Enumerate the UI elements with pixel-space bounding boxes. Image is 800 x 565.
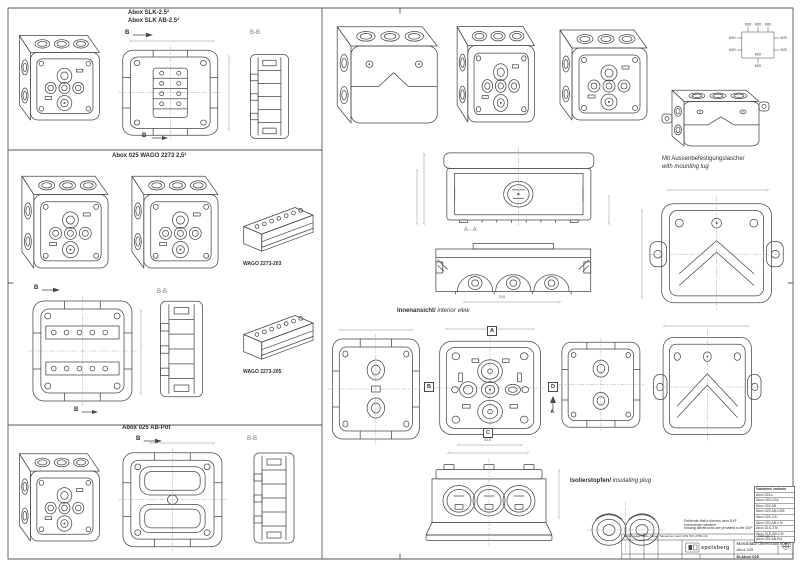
knockout-schematic: M20 M20 M20 M20 M20 M20 M20 M20 M20 [729,23,787,69]
wago-isometric-view-2 [132,176,218,268]
main-section-aa-view [436,244,591,295]
slk-section-marker-b-bottom: B [142,133,146,140]
abpot-front-view [118,448,227,551]
knockout-label: M20 [781,48,788,52]
knockout-label: M20 [781,36,788,40]
insulating-plug-label-de: Isolierstopfen/ [570,478,611,484]
lid-with-lugs-view [652,330,763,442]
insulating-plug-label-en: insulating plug [611,478,651,484]
main-isometric-open-view-2 [560,30,647,120]
scale-label: Maßstab 1:1 [758,535,775,538]
main-isometric-closed-view [337,27,437,123]
interior-marker-b: B [424,382,434,392]
wago-connector-203-label: WAGO 2273-203 [243,262,281,268]
main-isometric-open-view-1 [457,27,534,122]
interior-view-label-en: interior view [436,308,470,314]
wago-title: Abox 025 WAGO 2273 2,5² [112,153,186,160]
mounting-lug-front-view [648,196,785,310]
abpot-section-bb-view [254,453,294,543]
slk-title-line1: Abox SLK-2.5² [128,10,169,17]
abpot-section-marker-b: B [136,436,140,443]
section-aa-label: A - A [464,227,477,234]
abpot-title: Abox 025 AB-Pot [122,425,170,432]
slk-front-view [118,46,223,140]
wago-isometric-view-1 [22,176,108,268]
dimension-sheet: M20 M20 M20 M20 M20 M20 M20 M20 M20 [0,0,800,565]
company-logo-text: spelsberg [701,545,730,551]
missing-dims-note-en: missing dimensions are provided in the D… [684,526,754,530]
knockout-label: M20 [745,23,752,27]
wago-front-view [28,296,137,406]
interior-marker-d: D [548,382,558,392]
mounting-lug-note-de: Mit Aussenbefestigungslasche/ [662,156,744,163]
dim-aa-width: 75,8 [498,296,505,300]
knockout-label: M20 [729,48,736,52]
small-front-view-right [558,338,644,432]
slk-isometric-view [19,35,99,120]
wago-section-marker-b-bottom: B [74,407,78,414]
slk-section-bb-view [251,55,289,139]
abpot-isometric-view [19,454,99,541]
document-title: Massblatt/ dimension sheet [737,541,792,546]
tolerance-note: Unbemaßte Maße haben Toleranzen nach DIN… [624,535,708,538]
small-front-view-left [328,334,424,444]
main-front-elevation [444,148,594,226]
interior-marker-a: A [487,326,497,336]
mounting-lug-isometric-view [672,90,759,146]
wago-section-bb-view [161,301,203,396]
interior-view-label: Innenansicht/ interior view [397,308,469,315]
knockout-label: M20 [755,64,762,68]
abpot-section-label-bb: B-B [247,436,257,443]
slk-title-line2: Abox SLK AB-2.5² [128,18,179,25]
wago-section-marker-b-top: B [34,285,38,292]
interior-view [434,336,546,440]
knockout-label: M20 [765,23,772,27]
three-gang-side-view [426,458,552,545]
sheet-frame [8,8,793,559]
slk-section-marker-b-top: B [125,30,129,37]
product-name: Abox 025 [737,548,754,552]
knockout-label: M20 [755,23,762,27]
knockout-label: M20 [755,53,762,57]
insulating-plug-view [586,501,666,551]
wago-connector-205-label: WAGO 2273-205 [243,370,281,376]
wago-connector-205-view [244,316,313,360]
insulating-plug-label: Isolierstopfen/ insulating plug [570,478,651,485]
wago-connector-203-view [244,208,313,252]
interior-view-label-de: Innenansicht/ [397,308,436,314]
interior-marker-c: C [483,428,493,438]
dim-interior-width: 53,8 [484,439,491,443]
mounting-lug-note-en: with mounting lug [662,164,709,171]
knockout-label: M20 [729,36,736,40]
slk-section-label-bb: B-B [250,30,260,37]
interior-arrow-a-label: A [551,410,555,416]
wago-section-label-bb: B-B [157,289,167,296]
document-number: M-Abox 025 [737,555,759,559]
drawing-canvas: M20 M20 M20 M20 M20 M20 M20 M20 M20 [0,0,800,565]
